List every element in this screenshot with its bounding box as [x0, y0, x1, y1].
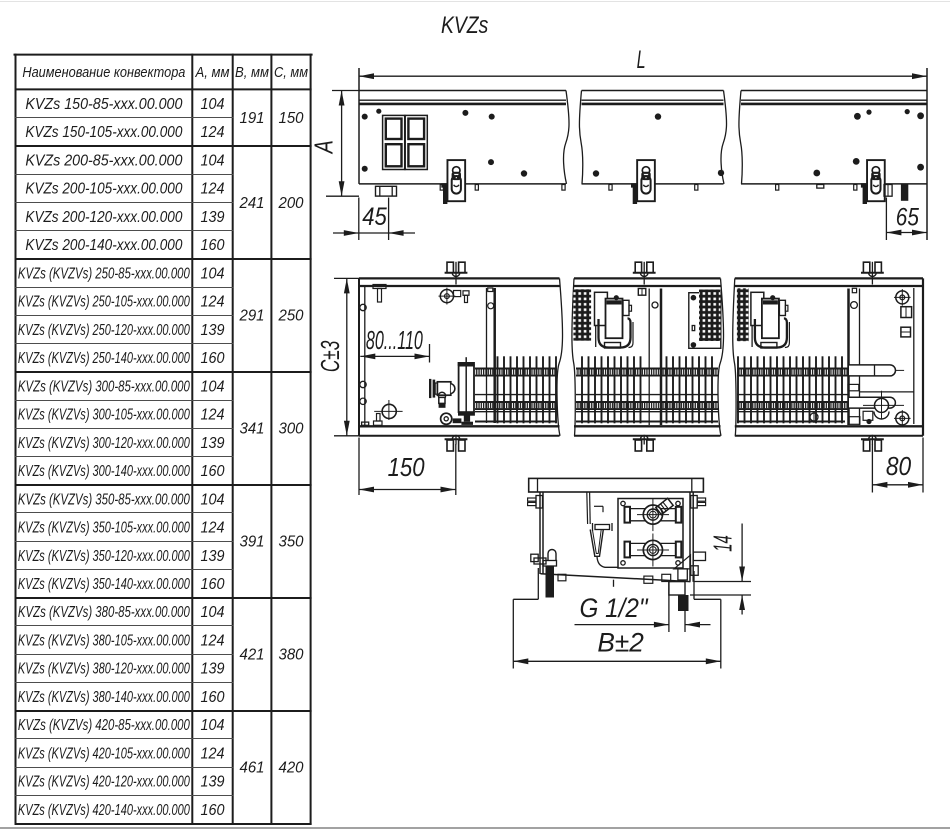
svg-text:80: 80 — [886, 451, 912, 481]
svg-text:65: 65 — [896, 203, 919, 231]
svg-text:KVZs (KVZVs) 350-105-xxx.00.00: KVZs (KVZVs) 350-105-xxx.00.000 — [18, 520, 190, 537]
svg-text:380: 380 — [279, 647, 304, 664]
svg-text:KVZs (KVZVs) 420-120-xxx.00.00: KVZs (KVZVs) 420-120-xxx.00.000 — [18, 774, 190, 791]
svg-text:160: 160 — [201, 802, 225, 819]
svg-text:139: 139 — [201, 548, 225, 565]
svg-text:А, мм: А, мм — [195, 64, 230, 81]
svg-text:104: 104 — [201, 378, 225, 395]
svg-text:300: 300 — [279, 421, 304, 438]
svg-text:KVZs 200-105-xxx.00.000: KVZs 200-105-xxx.00.000 — [25, 181, 182, 198]
svg-text:KVZs (KVZVs) 300-120-xxx.00.00: KVZs (KVZVs) 300-120-xxx.00.000 — [18, 435, 190, 452]
svg-text:124: 124 — [201, 407, 225, 424]
svg-text:KVZs (KVZVs) 420-105-xxx.00.00: KVZs (KVZVs) 420-105-xxx.00.000 — [18, 745, 190, 762]
svg-text:KVZs (KVZVs) 350-85-xxx.00.000: KVZs (KVZVs) 350-85-xxx.00.000 — [18, 491, 190, 508]
svg-text:В, мм: В, мм — [235, 64, 269, 81]
svg-text:45: 45 — [362, 203, 387, 231]
svg-text:B±2: B±2 — [597, 628, 644, 658]
svg-text:KVZs (KVZVs) 300-85-xxx.00.000: KVZs (KVZVs) 300-85-xxx.00.000 — [18, 378, 190, 395]
svg-text:150: 150 — [388, 452, 425, 482]
svg-text:421: 421 — [240, 647, 265, 664]
svg-text:KVZs (KVZVs) 380-105-xxx.00.00: KVZs (KVZVs) 380-105-xxx.00.000 — [18, 633, 190, 650]
svg-text:139: 139 — [201, 322, 225, 339]
svg-text:KVZs (KVZVs) 380-85-xxx.00.000: KVZs (KVZVs) 380-85-xxx.00.000 — [18, 604, 190, 621]
svg-text:KVZs (KVZVs) 250-85-xxx.00.000: KVZs (KVZVs) 250-85-xxx.00.000 — [18, 265, 190, 282]
svg-text:KVZs (KVZVs) 420-85-xxx.00.000: KVZs (KVZVs) 420-85-xxx.00.000 — [18, 717, 190, 734]
svg-text:250: 250 — [278, 308, 304, 325]
svg-text:104: 104 — [201, 604, 225, 621]
svg-text:KVZs 200-85-xxx.00.000: KVZs 200-85-xxx.00.000 — [25, 152, 182, 169]
svg-text:KVZs (KVZVs) 250-120-xxx.00.00: KVZs (KVZVs) 250-120-xxx.00.000 — [18, 322, 190, 339]
svg-text:KVZs 200-120-xxx.00.000: KVZs 200-120-xxx.00.000 — [25, 209, 182, 226]
svg-text:139: 139 — [201, 209, 225, 226]
svg-text:A: A — [309, 140, 339, 154]
svg-text:150: 150 — [279, 110, 304, 127]
svg-text:139: 139 — [201, 661, 225, 678]
svg-text:KVZs (KVZVs) 300-105-xxx.00.00: KVZs (KVZVs) 300-105-xxx.00.000 — [18, 407, 190, 424]
svg-text:291: 291 — [239, 308, 265, 325]
svg-text:KVZs 200-140-xxx.00.000: KVZs 200-140-xxx.00.000 — [25, 237, 182, 254]
svg-text:391: 391 — [240, 534, 265, 551]
svg-text:124: 124 — [201, 520, 225, 537]
svg-text:124: 124 — [201, 633, 225, 650]
svg-text:C±3: C±3 — [315, 340, 345, 372]
svg-text:461: 461 — [240, 760, 265, 777]
svg-text:KVZs (KVZVs) 250-140-xxx.00.00: KVZs (KVZVs) 250-140-xxx.00.000 — [18, 350, 190, 367]
svg-text:104: 104 — [201, 152, 225, 169]
svg-text:341: 341 — [240, 421, 265, 438]
svg-text:200: 200 — [278, 195, 304, 212]
svg-text:KVZs (KVZVs) 300-140-xxx.00.00: KVZs (KVZVs) 300-140-xxx.00.000 — [18, 463, 190, 480]
svg-text:104: 104 — [201, 491, 225, 508]
svg-text:160: 160 — [201, 237, 225, 254]
svg-text:160: 160 — [201, 689, 225, 706]
svg-text:420: 420 — [279, 760, 304, 777]
svg-text:KVZs (KVZVs) 350-120-xxx.00.00: KVZs (KVZVs) 350-120-xxx.00.000 — [18, 548, 190, 565]
svg-text:139: 139 — [201, 435, 225, 452]
svg-text:С, мм: С, мм — [274, 64, 308, 81]
svg-text:191: 191 — [240, 110, 265, 127]
svg-text:160: 160 — [201, 463, 225, 480]
svg-text:KVZs: KVZs — [441, 12, 488, 39]
svg-text:350: 350 — [279, 534, 304, 551]
svg-text:139: 139 — [201, 774, 225, 791]
svg-text:80...110: 80...110 — [366, 325, 423, 355]
svg-text:104: 104 — [201, 265, 225, 282]
svg-text:160: 160 — [201, 350, 225, 367]
svg-text:160: 160 — [201, 576, 225, 593]
svg-text:G 1/2": G 1/2" — [580, 593, 649, 623]
svg-text:L: L — [637, 46, 646, 74]
svg-text:KVZs (KVZVs) 250-105-xxx.00.00: KVZs (KVZVs) 250-105-xxx.00.000 — [18, 294, 190, 311]
svg-text:KVZs (KVZVs) 350-140-xxx.00.00: KVZs (KVZVs) 350-140-xxx.00.000 — [18, 576, 190, 593]
svg-text:KVZs 150-85-xxx.00.000: KVZs 150-85-xxx.00.000 — [25, 96, 182, 113]
svg-text:124: 124 — [201, 124, 225, 141]
svg-text:KVZs (KVZVs) 380-140-xxx.00.00: KVZs (KVZVs) 380-140-xxx.00.000 — [18, 689, 190, 706]
svg-text:14: 14 — [708, 535, 738, 552]
svg-text:241: 241 — [239, 195, 265, 212]
svg-text:104: 104 — [201, 717, 225, 734]
svg-text:KVZs (KVZVs) 380-120-xxx.00.00: KVZs (KVZVs) 380-120-xxx.00.000 — [18, 661, 190, 678]
svg-text:104: 104 — [201, 96, 225, 113]
svg-text:Наименование конвектора: Наименование конвектора — [22, 64, 185, 81]
svg-text:KVZs (KVZVs) 420-140-xxx.00.00: KVZs (KVZVs) 420-140-xxx.00.000 — [18, 802, 190, 819]
svg-text:124: 124 — [201, 294, 225, 311]
svg-text:124: 124 — [201, 745, 225, 762]
svg-text:124: 124 — [201, 181, 225, 198]
svg-text:KVZs 150-105-xxx.00.000: KVZs 150-105-xxx.00.000 — [25, 124, 182, 141]
